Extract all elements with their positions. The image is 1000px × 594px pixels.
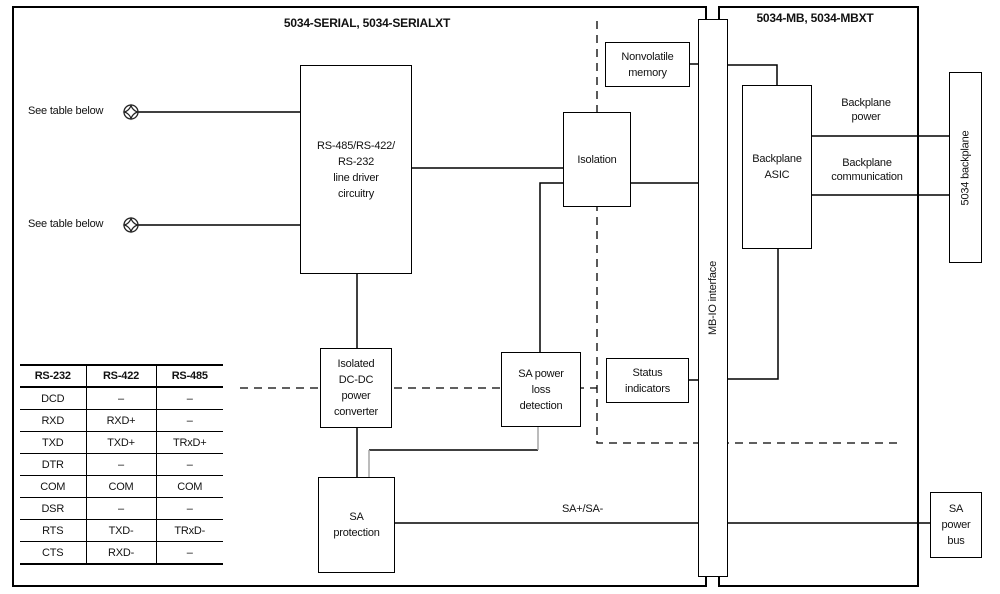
table-row: DCD – – (20, 387, 223, 410)
see-table-label-1: See table below (28, 104, 103, 118)
pin-cell: COM (20, 476, 86, 498)
pin-cell: – (156, 454, 223, 476)
table-row: COM COM COM (20, 476, 223, 498)
block-backplane-asic-label: Backplane ASIC (752, 151, 802, 183)
table-row: TXD TXD+ TRxD+ (20, 432, 223, 454)
pin-cell: – (86, 498, 156, 520)
pin-cell: RTS (20, 520, 86, 542)
pin-cell: – (156, 387, 223, 410)
pin-cell: COM (86, 476, 156, 498)
block-5034-backplane-label: 5034 backplane (960, 130, 972, 205)
pin-table-header: RS-422 (86, 365, 156, 387)
pin-cell: – (86, 454, 156, 476)
pin-table: RS-232 RS-422 RS-485 DCD – – RXD RXD+ – … (20, 364, 223, 565)
block-5034-backplane: 5034 backplane (949, 72, 982, 263)
pin-cell: TXD+ (86, 432, 156, 454)
see-table-label-2: See table below (28, 217, 103, 231)
block-diagram: 5034-SERIAL, 5034-SERIALXT 5034-MB, 5034… (0, 0, 1000, 594)
sa-bus-line-label: SA+/SA- (562, 502, 603, 516)
pin-cell: RXD (20, 410, 86, 432)
block-status-indicators: Status indicators (606, 358, 689, 403)
pin-cell: TXD- (86, 520, 156, 542)
table-row: RTS TXD- TRxD- (20, 520, 223, 542)
pin-cell: TRxD- (156, 520, 223, 542)
pin-cell: COM (156, 476, 223, 498)
pin-cell: TRxD+ (156, 432, 223, 454)
table-row: RXD RXD+ – (20, 410, 223, 432)
serial-module-title: 5034-SERIAL, 5034-SERIALXT (284, 16, 450, 30)
block-sa-power-bus-label: SA power bus (942, 501, 971, 549)
pin-table-header: RS-232 (20, 365, 86, 387)
pin-cell: DCD (20, 387, 86, 410)
pin-table-header: RS-485 (156, 365, 223, 387)
table-row: DTR – – (20, 454, 223, 476)
block-isolation: Isolation (563, 112, 631, 207)
block-backplane-asic: Backplane ASIC (742, 85, 812, 249)
backplane-power-label: Backplane power (826, 96, 906, 124)
pin-table-header-row: RS-232 RS-422 RS-485 (20, 365, 223, 387)
pin-cell: TXD (20, 432, 86, 454)
block-line-driver: RS-485/RS-422/ RS-232 line driver circui… (300, 65, 412, 274)
block-nonvolatile-memory-label: Nonvolatile memory (621, 49, 673, 81)
pin-cell: – (156, 498, 223, 520)
pin-cell: RXD- (86, 542, 156, 565)
block-mb-io-interface: MB-IO interface (698, 19, 728, 577)
block-mb-io-interface-label: MB-IO interface (707, 261, 719, 335)
block-sa-power-bus: SA power bus (930, 492, 982, 558)
block-status-indicators-label: Status indicators (625, 365, 670, 397)
table-row: CTS RXD- – (20, 542, 223, 565)
block-isolation-label: Isolation (577, 152, 616, 168)
block-nonvolatile-memory: Nonvolatile memory (605, 42, 690, 87)
block-dcdc-converter: Isolated DC-DC power converter (320, 348, 392, 428)
block-line-driver-label: RS-485/RS-422/ RS-232 line driver circui… (317, 138, 395, 202)
block-dcdc-converter-label: Isolated DC-DC power converter (334, 356, 378, 420)
pin-cell: – (156, 542, 223, 565)
pin-cell: CTS (20, 542, 86, 565)
pin-cell: RXD+ (86, 410, 156, 432)
mb-module-title: 5034-MB, 5034-MBXT (756, 11, 873, 25)
pin-cell: DTR (20, 454, 86, 476)
pin-cell: – (156, 410, 223, 432)
backplane-communication-label: Backplane communication (816, 156, 918, 184)
block-sa-power-loss: SA power loss detection (501, 352, 581, 427)
block-sa-protection-label: SA protection (333, 509, 379, 541)
table-row: DSR – – (20, 498, 223, 520)
pin-cell: DSR (20, 498, 86, 520)
block-sa-protection: SA protection (318, 477, 395, 573)
pin-cell: – (86, 387, 156, 410)
block-sa-power-loss-label: SA power loss detection (518, 366, 563, 414)
